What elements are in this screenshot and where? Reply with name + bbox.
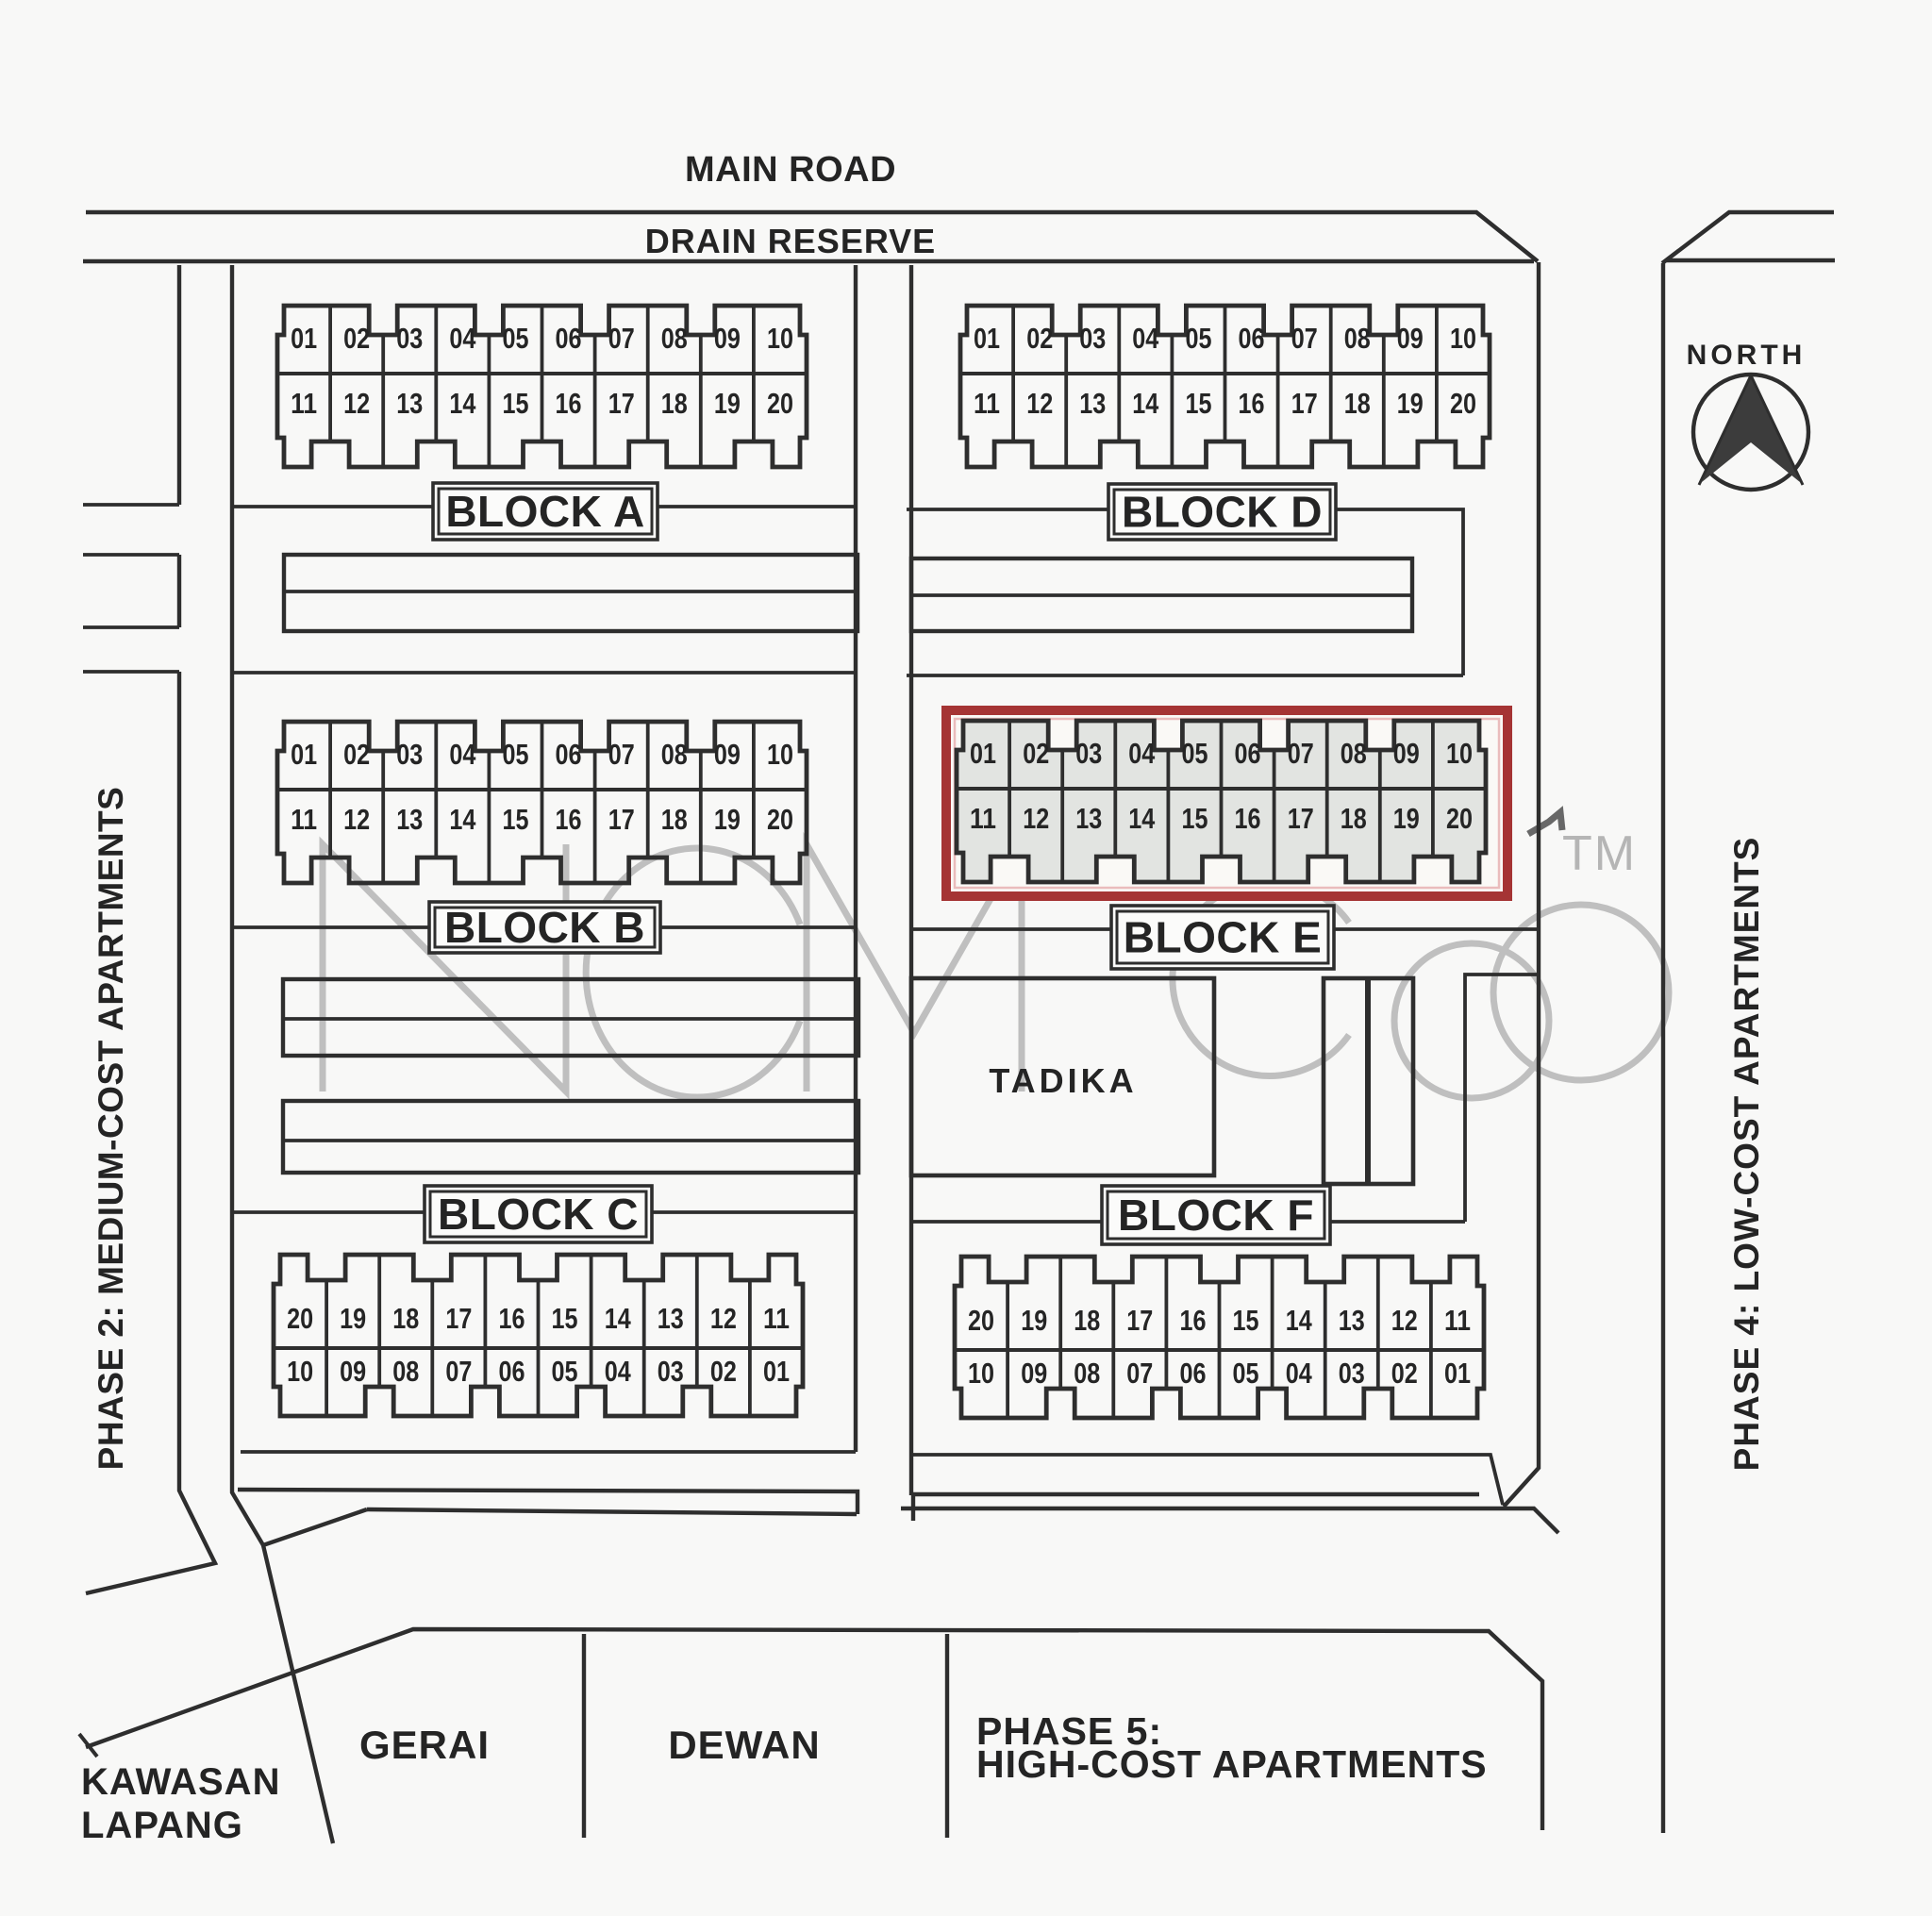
svg-text:01: 01 bbox=[291, 322, 317, 355]
svg-text:07: 07 bbox=[1126, 1357, 1153, 1390]
svg-text:01: 01 bbox=[1444, 1357, 1471, 1390]
svg-text:13: 13 bbox=[396, 387, 423, 420]
svg-text:10: 10 bbox=[287, 1355, 313, 1388]
svg-text:04: 04 bbox=[1286, 1357, 1313, 1390]
svg-text:10: 10 bbox=[968, 1357, 994, 1390]
svg-text:11: 11 bbox=[970, 802, 996, 835]
svg-text:06: 06 bbox=[556, 738, 582, 771]
svg-text:17: 17 bbox=[1126, 1304, 1153, 1337]
svg-text:16: 16 bbox=[1235, 802, 1261, 835]
svg-text:09: 09 bbox=[340, 1355, 366, 1388]
svg-text:07: 07 bbox=[1291, 322, 1318, 355]
svg-text:13: 13 bbox=[1075, 802, 1102, 835]
svg-text:TADIKA: TADIKA bbox=[989, 1061, 1137, 1100]
svg-text:16: 16 bbox=[1239, 387, 1265, 420]
svg-text:15: 15 bbox=[1186, 387, 1212, 420]
svg-text:03: 03 bbox=[658, 1355, 684, 1388]
svg-text:11: 11 bbox=[763, 1302, 790, 1335]
svg-text:02: 02 bbox=[710, 1355, 737, 1388]
svg-text:12: 12 bbox=[710, 1302, 737, 1335]
svg-text:08: 08 bbox=[1074, 1357, 1100, 1390]
svg-text:02: 02 bbox=[343, 322, 370, 355]
svg-text:14: 14 bbox=[605, 1302, 632, 1335]
svg-text:BLOCK E: BLOCK E bbox=[1124, 913, 1323, 962]
svg-text:18: 18 bbox=[1074, 1304, 1100, 1337]
svg-text:08: 08 bbox=[1341, 737, 1367, 770]
svg-text:19: 19 bbox=[340, 1302, 366, 1335]
svg-text:HIGH-COST APARTMENTS: HIGH-COST APARTMENTS bbox=[976, 1742, 1488, 1786]
svg-text:18: 18 bbox=[392, 1302, 419, 1335]
svg-text:MAIN ROAD: MAIN ROAD bbox=[685, 150, 896, 190]
svg-text:01: 01 bbox=[974, 322, 1000, 355]
svg-text:17: 17 bbox=[1291, 387, 1318, 420]
svg-text:15: 15 bbox=[1233, 1304, 1259, 1337]
svg-text:07: 07 bbox=[445, 1355, 472, 1388]
svg-text:18: 18 bbox=[1344, 387, 1371, 420]
svg-text:PHASE 2: MEDIUM-COST APARTMENT: PHASE 2: MEDIUM-COST APARTMENTS bbox=[92, 787, 130, 1471]
svg-text:03: 03 bbox=[1339, 1357, 1365, 1390]
svg-text:DEWAN: DEWAN bbox=[668, 1723, 820, 1767]
svg-text:14: 14 bbox=[1132, 387, 1159, 420]
svg-text:17: 17 bbox=[608, 387, 635, 420]
svg-text:GERAI: GERAI bbox=[359, 1723, 490, 1767]
svg-text:12: 12 bbox=[343, 387, 370, 420]
svg-text:05: 05 bbox=[503, 322, 529, 355]
svg-text:20: 20 bbox=[968, 1304, 994, 1337]
svg-text:19: 19 bbox=[714, 803, 741, 836]
svg-text:04: 04 bbox=[449, 322, 476, 355]
svg-text:11: 11 bbox=[974, 387, 1000, 420]
svg-text:BLOCK D: BLOCK D bbox=[1122, 488, 1323, 537]
svg-text:DRAIN RESERVE: DRAIN RESERVE bbox=[645, 222, 936, 260]
svg-text:01: 01 bbox=[763, 1355, 790, 1388]
svg-text:06: 06 bbox=[1180, 1357, 1207, 1390]
svg-text:11: 11 bbox=[1444, 1304, 1471, 1337]
svg-text:KAWASAN: KAWASAN bbox=[81, 1761, 280, 1803]
svg-text:04: 04 bbox=[1132, 322, 1159, 355]
svg-text:TM: TM bbox=[1562, 826, 1637, 881]
svg-text:15: 15 bbox=[503, 803, 529, 836]
svg-text:01: 01 bbox=[291, 738, 317, 771]
svg-text:10: 10 bbox=[767, 322, 793, 355]
svg-text:PHASE 4: LOW-COST APARTMENTS: PHASE 4: LOW-COST APARTMENTS bbox=[1727, 837, 1766, 1472]
svg-text:20: 20 bbox=[287, 1302, 313, 1335]
svg-text:19: 19 bbox=[1393, 802, 1420, 835]
svg-text:13: 13 bbox=[658, 1302, 684, 1335]
svg-text:17: 17 bbox=[445, 1302, 472, 1335]
svg-text:14: 14 bbox=[1128, 802, 1156, 835]
svg-text:13: 13 bbox=[1339, 1304, 1365, 1337]
svg-text:BLOCK C: BLOCK C bbox=[438, 1190, 639, 1239]
svg-text:07: 07 bbox=[1288, 737, 1314, 770]
svg-text:04: 04 bbox=[1128, 737, 1156, 770]
svg-text:02: 02 bbox=[1391, 1357, 1418, 1390]
svg-text:20: 20 bbox=[767, 387, 793, 420]
svg-text:BLOCK A: BLOCK A bbox=[445, 487, 644, 536]
svg-text:08: 08 bbox=[1344, 322, 1371, 355]
svg-text:06: 06 bbox=[556, 322, 582, 355]
svg-text:05: 05 bbox=[1233, 1357, 1259, 1390]
svg-text:19: 19 bbox=[714, 387, 741, 420]
svg-text:17: 17 bbox=[608, 803, 635, 836]
svg-text:NORTH: NORTH bbox=[1687, 340, 1807, 371]
svg-text:02: 02 bbox=[343, 738, 370, 771]
svg-text:16: 16 bbox=[556, 387, 582, 420]
svg-text:18: 18 bbox=[661, 803, 688, 836]
svg-text:18: 18 bbox=[1341, 802, 1367, 835]
svg-text:20: 20 bbox=[1446, 802, 1473, 835]
svg-text:03: 03 bbox=[1079, 322, 1106, 355]
svg-text:03: 03 bbox=[396, 738, 423, 771]
svg-text:10: 10 bbox=[1450, 322, 1476, 355]
svg-text:09: 09 bbox=[1397, 322, 1424, 355]
svg-text:06: 06 bbox=[499, 1355, 525, 1388]
svg-text:09: 09 bbox=[1021, 1357, 1047, 1390]
svg-text:02: 02 bbox=[1023, 737, 1049, 770]
svg-text:12: 12 bbox=[1023, 802, 1049, 835]
svg-text:08: 08 bbox=[661, 738, 688, 771]
svg-text:06: 06 bbox=[1239, 322, 1265, 355]
svg-text:07: 07 bbox=[608, 738, 635, 771]
svg-text:BLOCK B: BLOCK B bbox=[444, 903, 645, 952]
svg-text:14: 14 bbox=[449, 387, 476, 420]
svg-text:03: 03 bbox=[396, 322, 423, 355]
svg-text:03: 03 bbox=[1075, 737, 1102, 770]
svg-text:BLOCK F: BLOCK F bbox=[1118, 1191, 1314, 1240]
svg-text:05: 05 bbox=[1182, 737, 1208, 770]
svg-text:15: 15 bbox=[503, 387, 529, 420]
svg-text:08: 08 bbox=[661, 322, 688, 355]
svg-text:20: 20 bbox=[767, 803, 793, 836]
svg-text:04: 04 bbox=[605, 1355, 632, 1388]
svg-text:02: 02 bbox=[1026, 322, 1053, 355]
svg-text:11: 11 bbox=[291, 803, 317, 836]
svg-text:10: 10 bbox=[1446, 737, 1473, 770]
svg-text:19: 19 bbox=[1397, 387, 1424, 420]
svg-text:05: 05 bbox=[1186, 322, 1212, 355]
svg-text:16: 16 bbox=[499, 1302, 525, 1335]
svg-text:01: 01 bbox=[970, 737, 996, 770]
svg-text:16: 16 bbox=[556, 803, 582, 836]
svg-text:05: 05 bbox=[552, 1355, 578, 1388]
svg-text:05: 05 bbox=[503, 738, 529, 771]
svg-text:12: 12 bbox=[1391, 1304, 1418, 1337]
svg-text:04: 04 bbox=[449, 738, 476, 771]
svg-text:18: 18 bbox=[661, 387, 688, 420]
svg-text:08: 08 bbox=[392, 1355, 419, 1388]
svg-text:14: 14 bbox=[449, 803, 476, 836]
svg-text:15: 15 bbox=[552, 1302, 578, 1335]
svg-text:17: 17 bbox=[1288, 802, 1314, 835]
svg-text:16: 16 bbox=[1180, 1304, 1207, 1337]
svg-text:09: 09 bbox=[714, 322, 741, 355]
svg-text:09: 09 bbox=[1393, 737, 1420, 770]
svg-text:09: 09 bbox=[714, 738, 741, 771]
svg-text:12: 12 bbox=[343, 803, 370, 836]
svg-text:10: 10 bbox=[767, 738, 793, 771]
svg-text:11: 11 bbox=[291, 387, 317, 420]
svg-text:06: 06 bbox=[1235, 737, 1261, 770]
svg-text:12: 12 bbox=[1026, 387, 1053, 420]
svg-text:19: 19 bbox=[1021, 1304, 1047, 1337]
svg-text:07: 07 bbox=[608, 322, 635, 355]
svg-text:14: 14 bbox=[1286, 1304, 1313, 1337]
svg-text:20: 20 bbox=[1450, 387, 1476, 420]
svg-text:13: 13 bbox=[396, 803, 423, 836]
svg-text:LAPANG: LAPANG bbox=[81, 1805, 243, 1846]
svg-text:13: 13 bbox=[1079, 387, 1106, 420]
svg-text:15: 15 bbox=[1182, 802, 1208, 835]
